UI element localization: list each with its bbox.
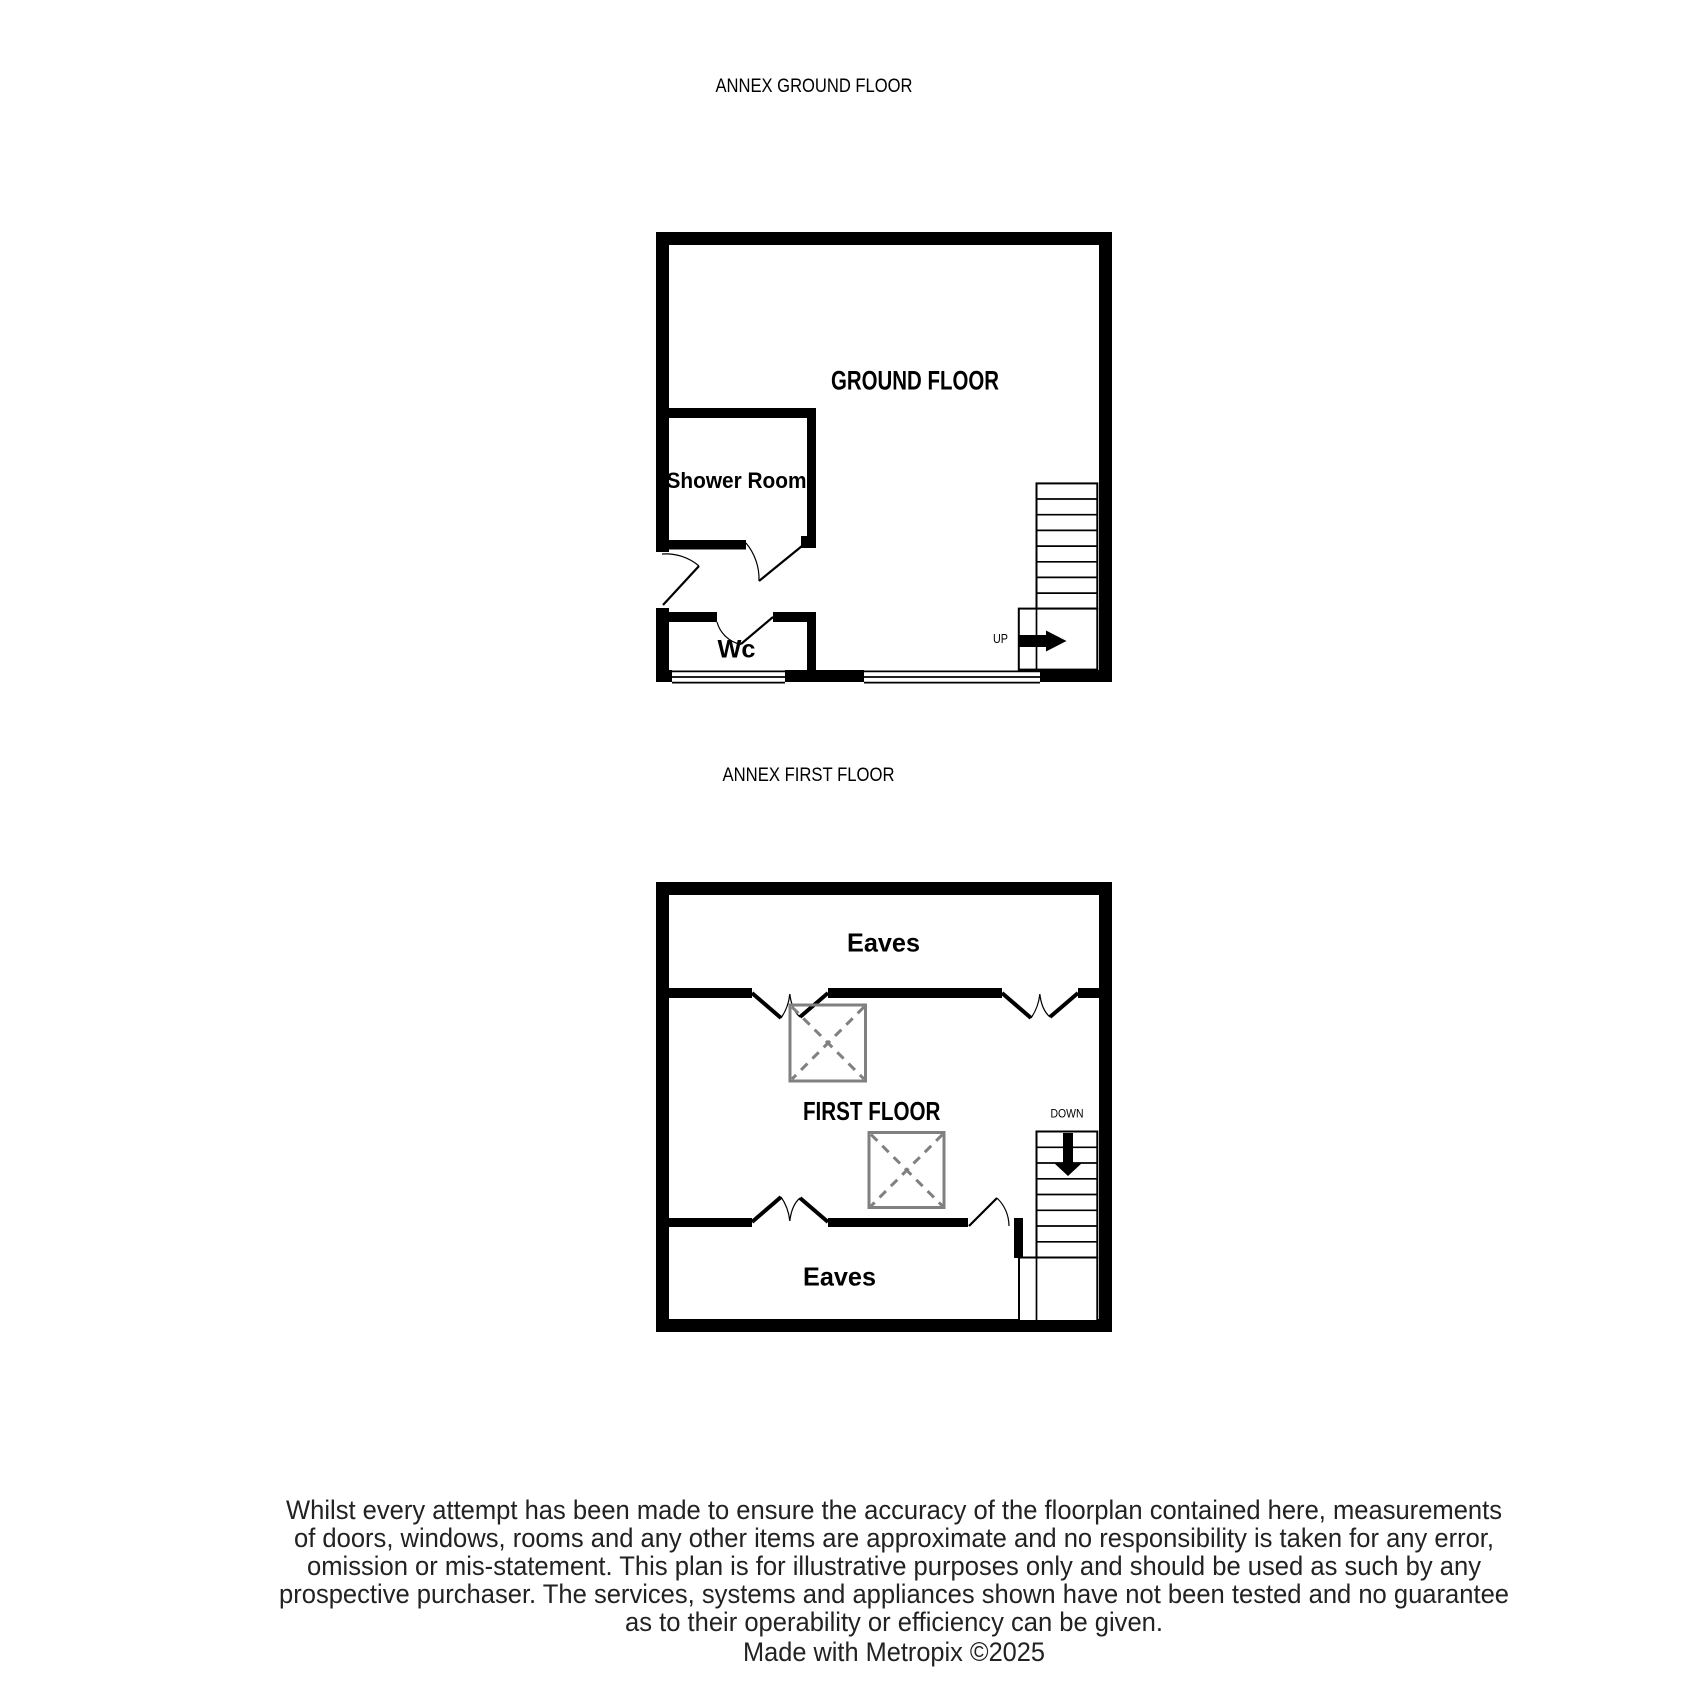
svg-text:Eaves: Eaves [847, 928, 920, 958]
svg-text:as to their operability or eff: as to their operability or efficiency ca… [625, 1607, 1163, 1637]
svg-text:Made with Metropix ©2025: Made with Metropix ©2025 [743, 1637, 1045, 1667]
svg-text:prospective purchaser. The ser: prospective purchaser. The services, sys… [279, 1579, 1509, 1609]
svg-text:Wc: Wc [718, 636, 756, 664]
svg-text:FIRST FLOOR: FIRST FLOOR [803, 1096, 941, 1126]
svg-text:Eaves: Eaves [803, 1262, 876, 1292]
svg-text:GROUND FLOOR: GROUND FLOOR [831, 366, 999, 396]
svg-text:DOWN: DOWN [1051, 1107, 1084, 1121]
svg-text:UP: UP [993, 632, 1008, 646]
svg-text:ANNEX GROUND FLOOR: ANNEX GROUND FLOOR [716, 76, 913, 97]
svg-text:ANNEX FIRST FLOOR: ANNEX FIRST FLOOR [723, 765, 895, 786]
svg-text:of doors, windows, rooms and a: of doors, windows, rooms and any other i… [294, 1523, 1494, 1553]
svg-text:Shower Room: Shower Room [667, 468, 807, 493]
svg-text:Whilst every attempt has been: Whilst every attempt has been made to en… [286, 1495, 1502, 1525]
svg-text:omission or mis-statement. Thi: omission or mis-statement. This plan is … [307, 1551, 1481, 1581]
